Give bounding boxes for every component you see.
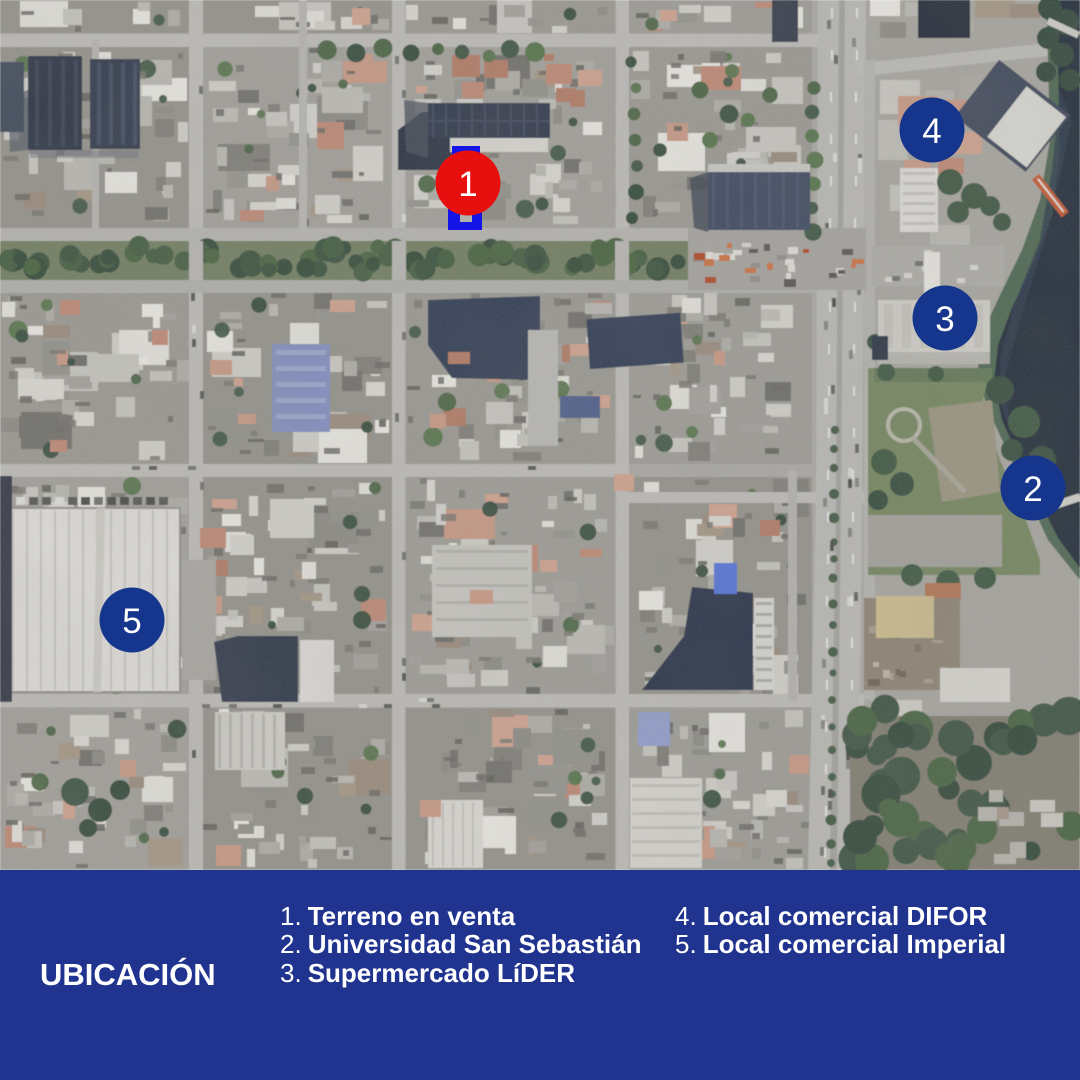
svg-text:2: 2 bbox=[1023, 470, 1042, 509]
svg-text:4: 4 bbox=[922, 112, 941, 151]
svg-text:3: 3 bbox=[935, 300, 954, 339]
svg-text:1: 1 bbox=[458, 165, 477, 204]
svg-text:5: 5 bbox=[122, 602, 141, 641]
